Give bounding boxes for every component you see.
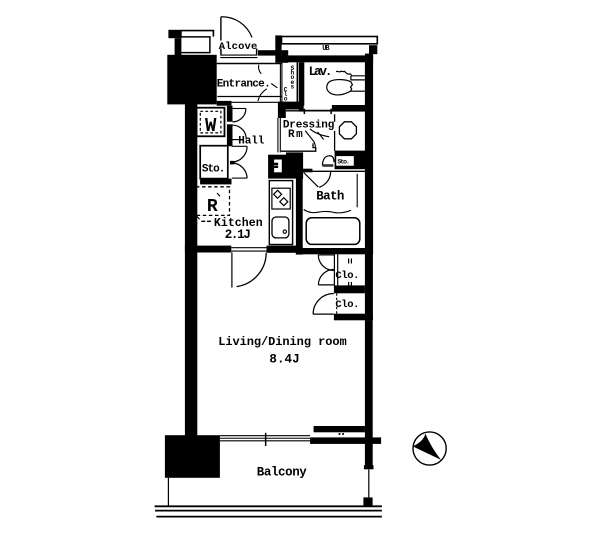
svg-text:UB: UB: [322, 45, 330, 53]
svg-text:Clo.: Clo.: [335, 299, 359, 311]
svg-text:Sto.: Sto.: [337, 159, 350, 166]
svg-text:W: W: [205, 115, 217, 137]
svg-text:Living/Dining room: Living/Dining room: [218, 335, 347, 349]
svg-text:Lav.: Lav.: [309, 65, 333, 79]
svg-text:.: .: [284, 100, 288, 107]
svg-text:R: R: [207, 197, 218, 217]
svg-text:s: s: [290, 83, 294, 90]
svg-text:8.4J: 8.4J: [269, 352, 299, 366]
svg-text:Hall: Hall: [238, 135, 265, 147]
svg-text:2.1J: 2.1J: [225, 228, 251, 242]
svg-text:Balcony: Balcony: [257, 465, 307, 479]
svg-text:Entrance.: Entrance.: [217, 79, 271, 91]
svg-text:Clo.: Clo.: [335, 270, 359, 282]
svg-text:Sto.: Sto.: [202, 163, 226, 175]
svg-text:Alcove: Alcove: [219, 41, 258, 53]
svg-text:Bath: Bath: [316, 190, 344, 204]
svg-text:Rm: Rm: [288, 129, 303, 141]
